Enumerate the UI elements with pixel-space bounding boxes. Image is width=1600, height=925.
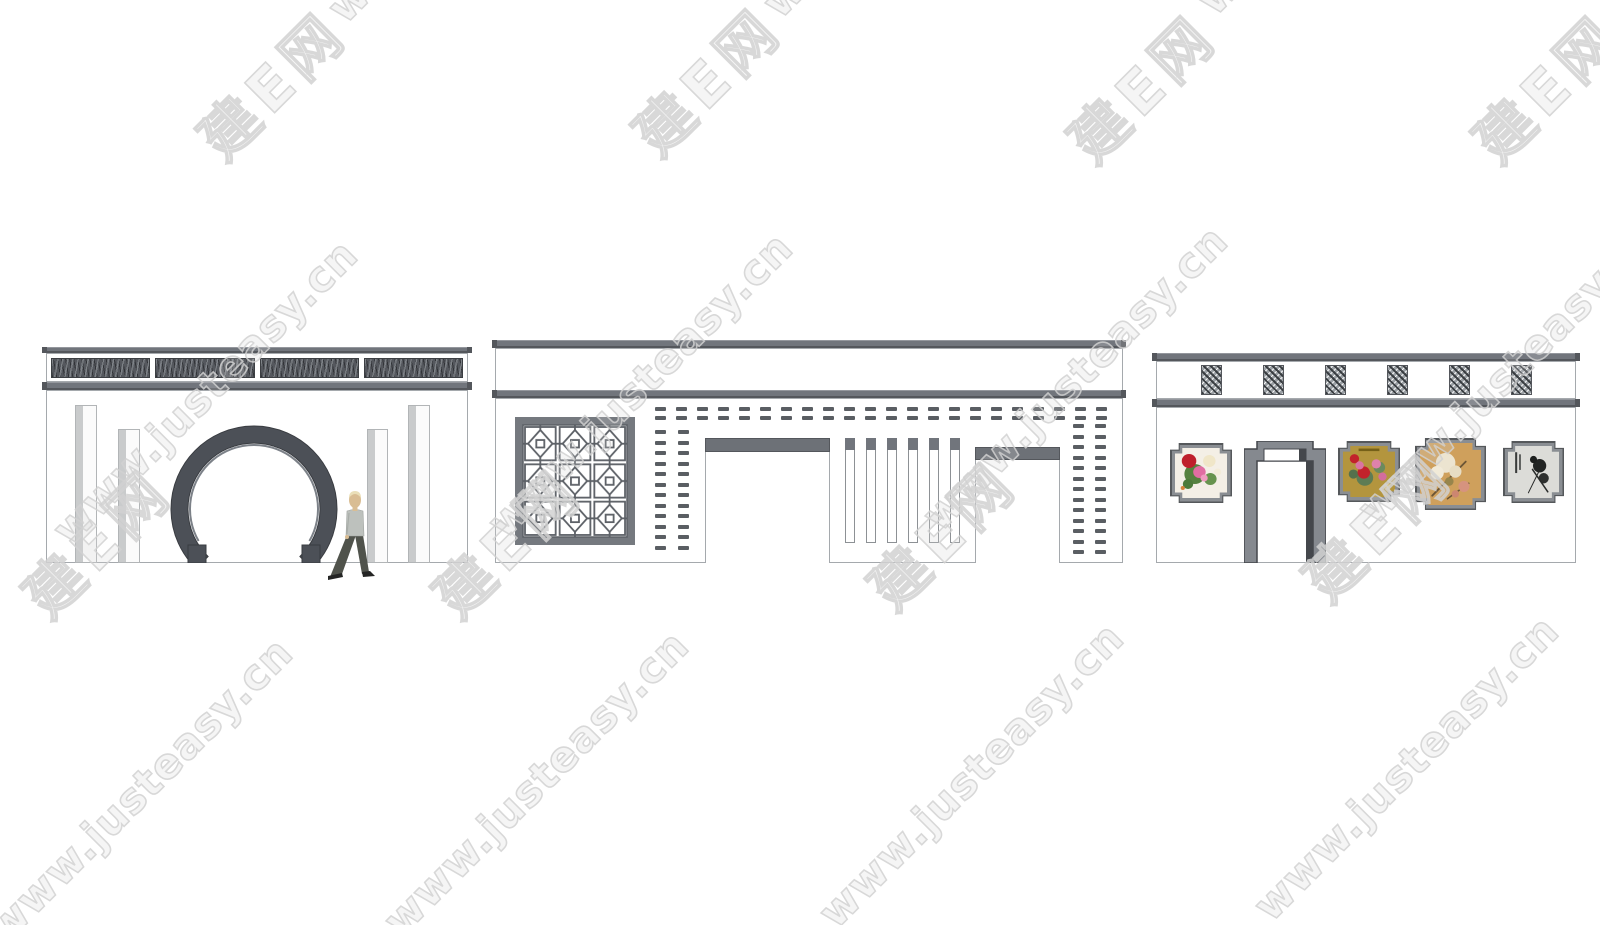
scene: 建E网建E网建E网建E网建E网建E网建E网建E网www.justeasy.cnw…	[0, 0, 1600, 925]
watermark-text: www.justeasy.cn	[809, 613, 1134, 925]
coping-band	[495, 348, 1123, 390]
watermark-text: www.justeasy.cn	[753, 0, 1078, 27]
frieze-band	[1156, 361, 1576, 399]
painting-canvas	[1508, 446, 1559, 498]
screen-wall	[492, 340, 1126, 563]
wall-coping	[492, 340, 1126, 348]
painting-canvas	[1343, 446, 1395, 497]
doorway-opening	[975, 447, 1060, 563]
brick-dash-column	[1073, 424, 1084, 554]
door-lintel	[705, 438, 830, 452]
watermark-text: 建E网	[1047, 0, 1233, 178]
wall-rail	[1152, 399, 1580, 407]
watermark-text: www.justeasy.cn	[1244, 606, 1569, 925]
painting-canvas	[1175, 448, 1227, 498]
door-lintel	[975, 447, 1060, 460]
watermark-text: www.justeasy.cn	[0, 628, 302, 925]
lattice-window	[515, 417, 635, 545]
painting-peony-gold	[1338, 441, 1400, 502]
brick-dash-row	[655, 416, 1111, 420]
watermark-text: www.justeasy.cn	[374, 621, 699, 925]
moon-gate-ring	[42, 347, 472, 563]
frieze-windows	[1201, 365, 1532, 395]
brick-dash-column	[655, 430, 666, 550]
watermark-text: 建E网	[177, 0, 363, 175]
gallery-wall	[1152, 353, 1580, 563]
brick-dash-column	[1095, 424, 1106, 554]
brick-dash-column	[678, 430, 689, 550]
wall-rail	[492, 390, 1126, 398]
painting-ink	[1503, 441, 1564, 503]
watermark-text: 建E网	[1452, 0, 1600, 178]
walking-person	[318, 487, 380, 587]
moon-gate-wall	[42, 347, 472, 563]
doorway-opening	[705, 438, 830, 563]
brick-dash-row	[655, 407, 1111, 411]
watermark-text: www.justeasy.cn	[1188, 0, 1513, 24]
wall-coping	[1152, 353, 1580, 361]
painting-canvas	[1420, 443, 1481, 505]
watermark-text: 建E网	[612, 0, 798, 171]
watermark-text: www.justeasy.cn	[318, 0, 643, 32]
stepped-arch-doorway	[1244, 441, 1326, 563]
painting-peony-white	[1170, 443, 1232, 503]
painting-blossom-tan	[1415, 438, 1486, 510]
timber-slats	[845, 438, 960, 543]
